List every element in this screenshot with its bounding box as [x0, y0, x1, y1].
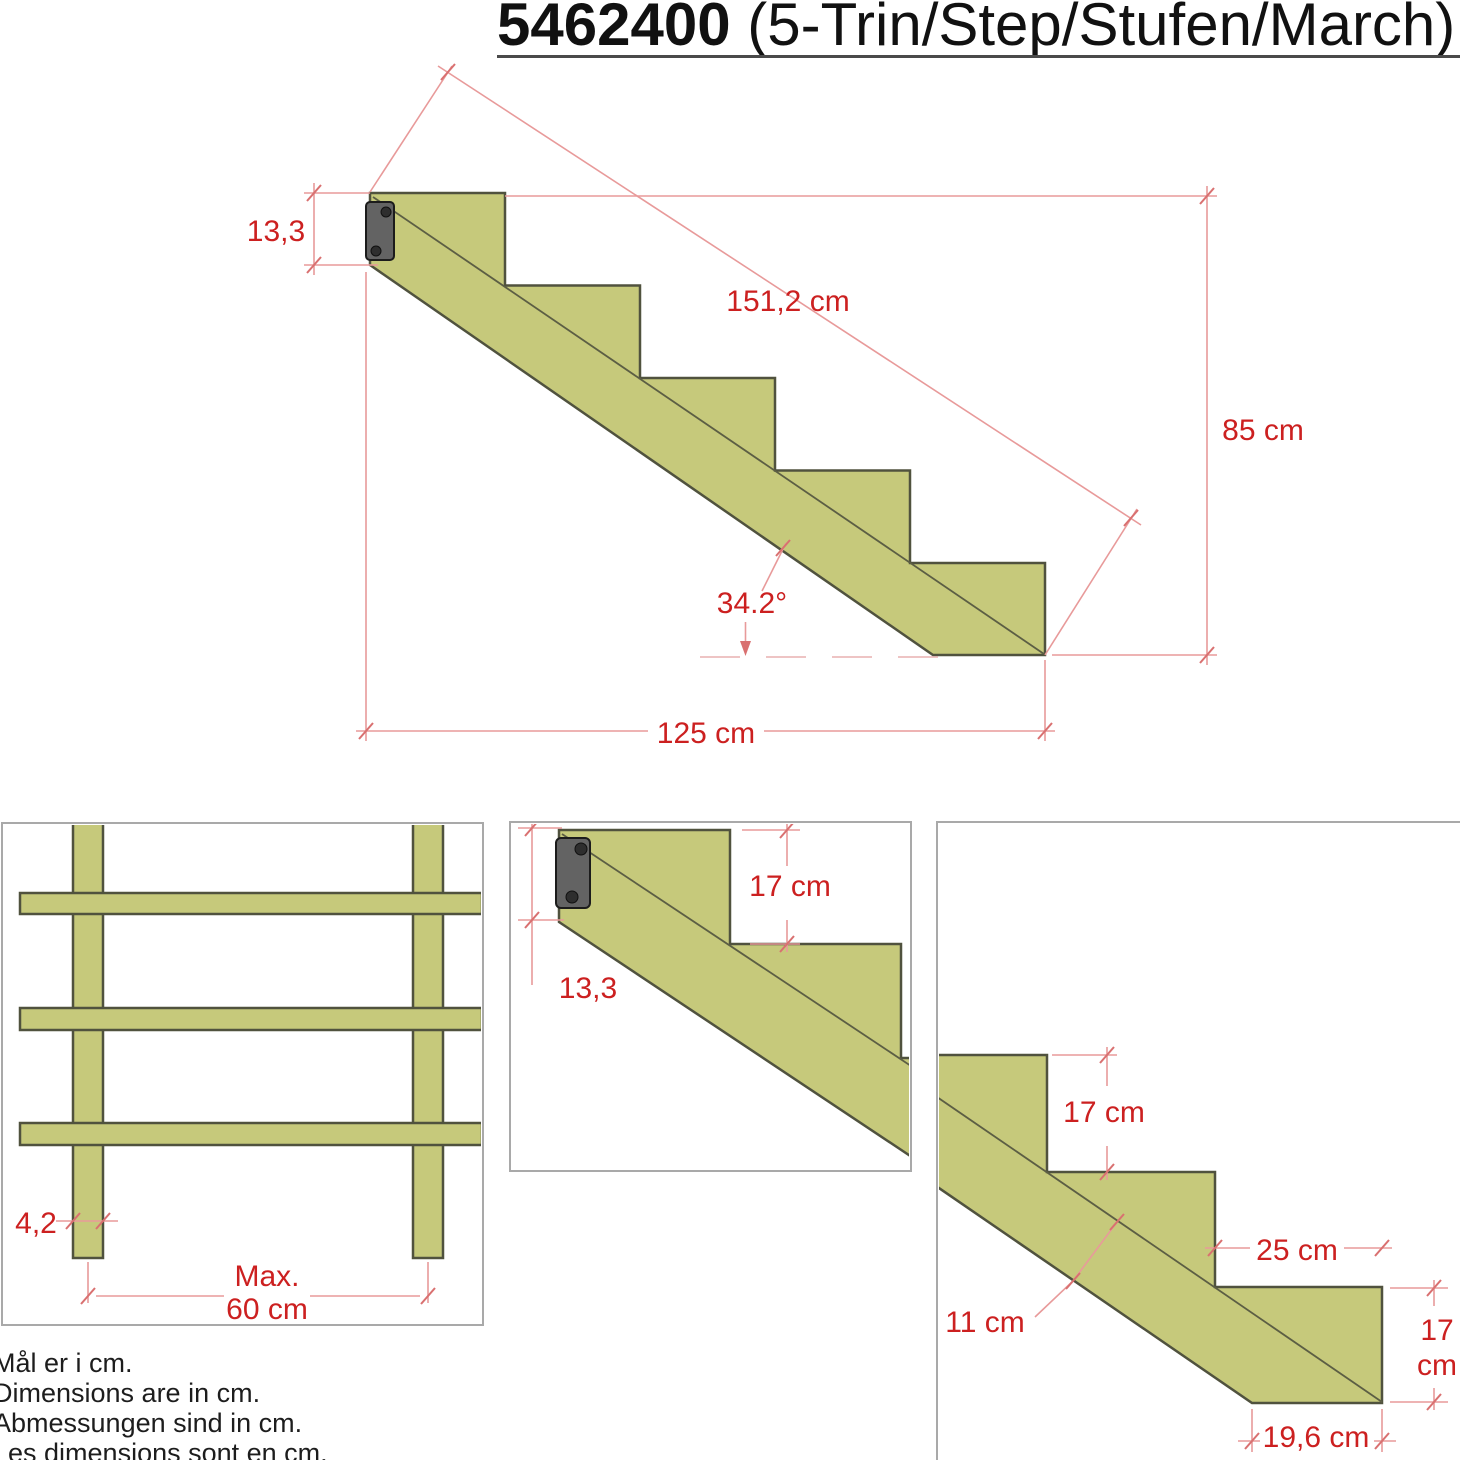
note-line: Mål er i cm. — [0, 1348, 328, 1378]
label-bracket-offset: 13,3 — [247, 215, 305, 248]
label-bracket-offset: 13,3 — [559, 972, 617, 1005]
label-rise-upper: 17 cm — [1063, 1096, 1145, 1129]
bracket-screw — [575, 843, 587, 855]
label-total-height: 85 cm — [1222, 414, 1304, 447]
note-line: Abmessungen sind in cm. — [0, 1408, 328, 1438]
dim-total-run — [356, 272, 1055, 741]
label-slope-length: 151,2 cm — [726, 285, 849, 318]
stair-technical-drawing: 13,3 151,2 cm 85 cm 34.2° 125 cm — [0, 0, 1460, 1460]
tread-board — [20, 893, 482, 914]
label-total-run: 125 cm — [657, 717, 755, 750]
label-max: Max. — [234, 1260, 299, 1293]
bracket-screw — [381, 207, 391, 217]
stringer-inner-edge — [373, 197, 1044, 654]
drawing-page: 5462400 (5-Trin/Step/Stufen/March) — [0, 0, 1460, 1460]
label-stringer-depth: 11 cm — [945, 1306, 1024, 1339]
bracket-screw — [371, 246, 381, 256]
note-line: Dimensions are in cm. — [0, 1378, 328, 1408]
stringer-left — [73, 823, 103, 1258]
label-spacing-value: 60 cm — [226, 1293, 308, 1326]
label-stringer-thickness: 4,2 — [15, 1207, 57, 1240]
stringer-corner-detail — [936, 1055, 1382, 1403]
label-bottom-run: 19,6 cm — [1263, 1421, 1370, 1454]
stringer-right — [413, 823, 443, 1258]
label-rise-right-unit: cm — [1417, 1349, 1457, 1382]
note-line: Les dimensions sont en cm. — [0, 1438, 328, 1460]
label-tread-depth: 25 cm — [1256, 1234, 1338, 1267]
bracket-screw — [566, 891, 578, 903]
tread-board — [20, 1123, 482, 1145]
front-view: 4,2 Max. 60 cm — [15, 823, 482, 1326]
label-rise-right-value: 17 — [1420, 1314, 1453, 1347]
corner-detail-view: 17 cm 25 cm 11 cm 17 cm 19,6 cm — [936, 1047, 1457, 1454]
units-notes: Mål er i cm. Dimensions are in cm. Abmes… — [0, 1348, 328, 1460]
main-side-view: 13,3 151,2 cm 85 cm 34.2° 125 cm — [247, 64, 1304, 750]
label-angle: 34.2° — [717, 587, 787, 620]
tread-board — [20, 1008, 482, 1030]
label-rise: 17 cm — [749, 870, 831, 903]
